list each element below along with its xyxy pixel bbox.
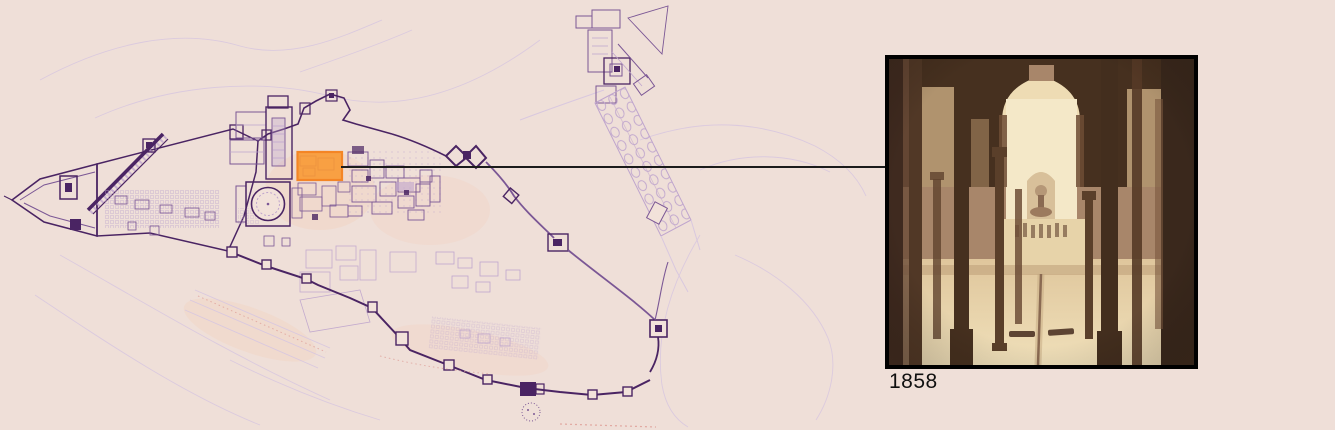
historic-photo-court-of-lions[interactable]: [885, 55, 1198, 369]
sepia-photo-graphic: [889, 59, 1194, 365]
generalife-gardens: [520, 6, 700, 320]
photo-caption: 1858: [889, 371, 938, 392]
map-highlight-marker[interactable]: [298, 152, 343, 180]
alcazaba-fortress: [4, 125, 258, 251]
highlight-rect[interactable]: [298, 152, 343, 180]
alhambra-site-plan-map: [0, 0, 880, 430]
connector-line: [341, 166, 886, 168]
photo-vignette: [889, 59, 1194, 365]
slide-canvas: 1858: [0, 0, 1335, 430]
secano-ruins: [429, 252, 542, 360]
